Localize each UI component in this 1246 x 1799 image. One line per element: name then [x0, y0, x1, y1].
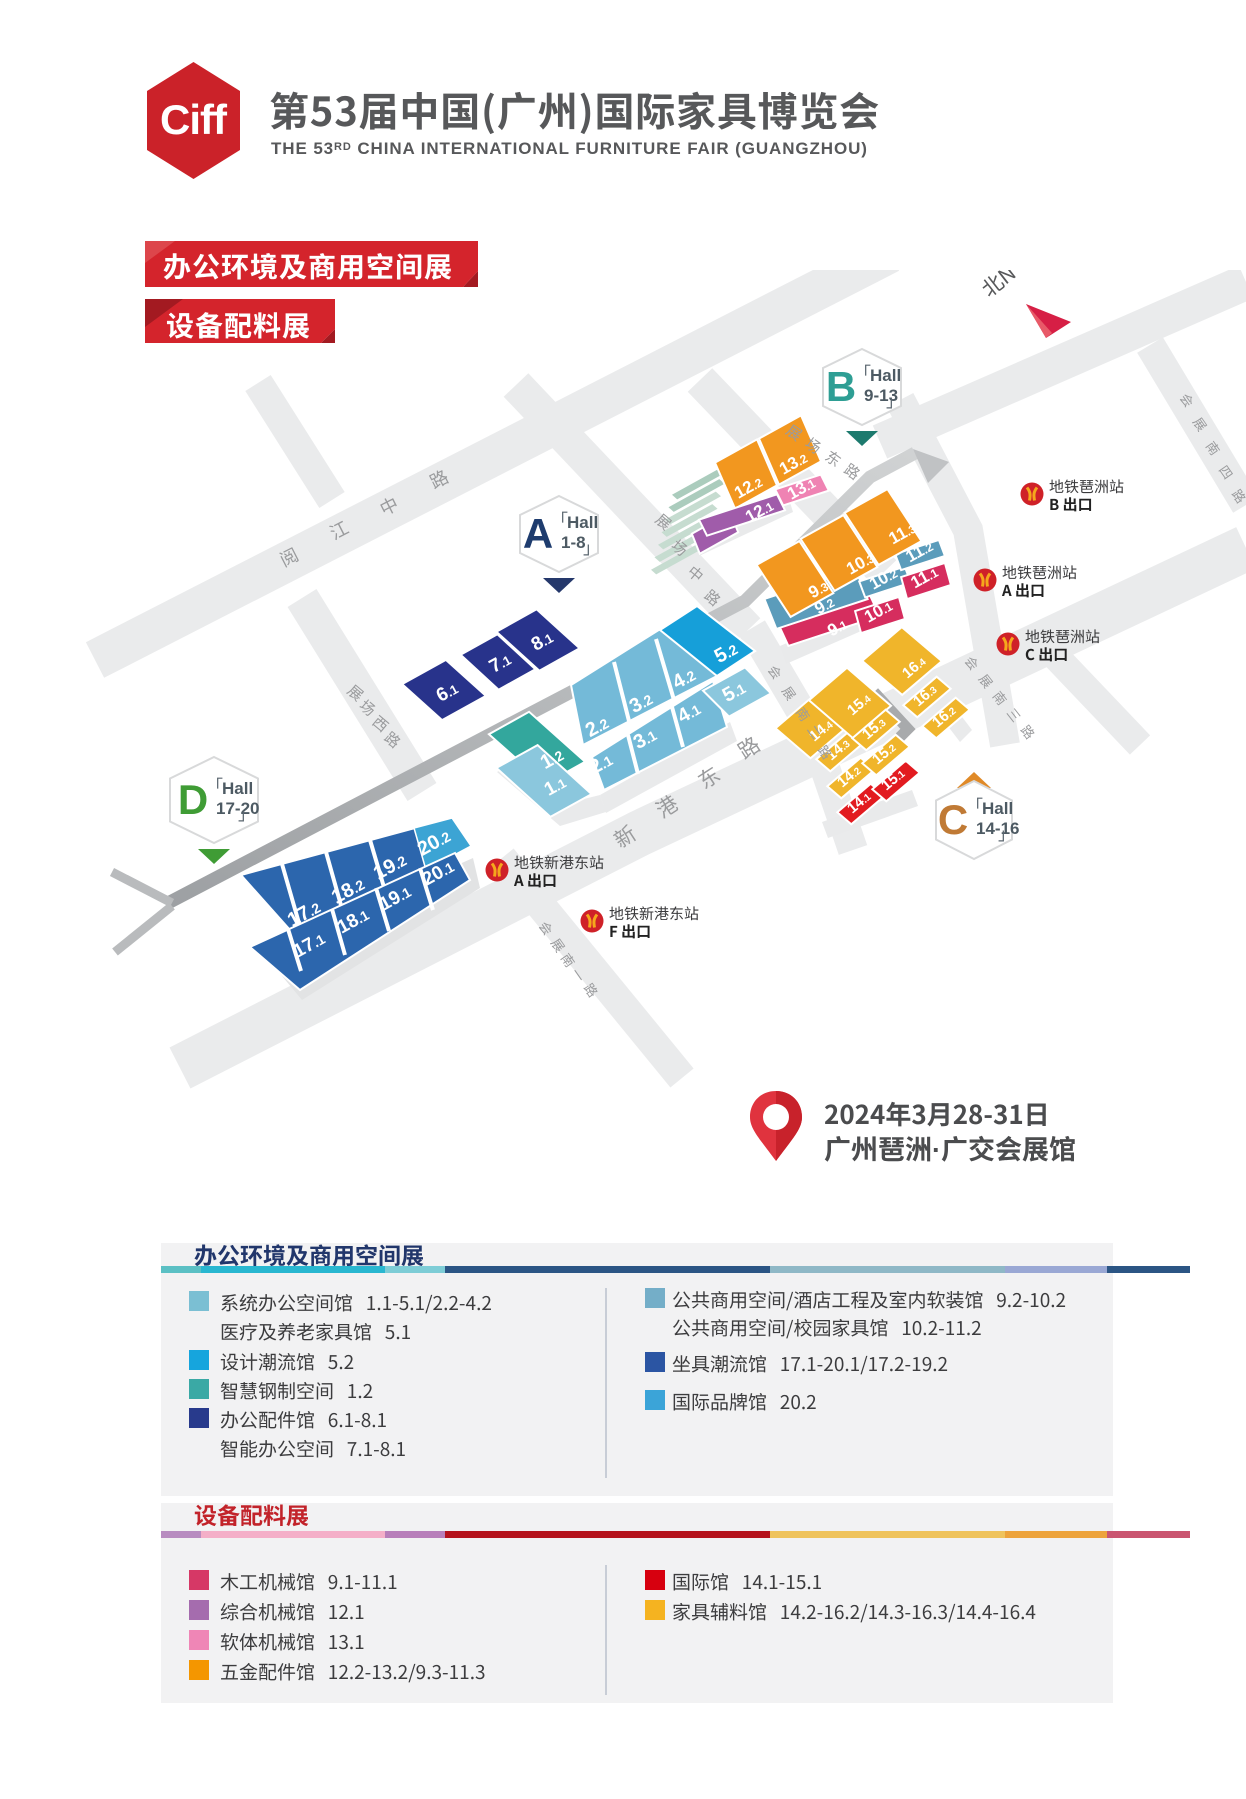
svg-text:Hall: Hall: [567, 513, 598, 532]
svg-text:路: 路: [1017, 721, 1040, 743]
svg-text:「: 「: [206, 772, 223, 797]
svg-text:」: 」: [238, 800, 255, 825]
svg-text:」: 」: [998, 820, 1015, 845]
svg-text:B: B: [826, 363, 856, 410]
svg-text:东: 东: [821, 446, 845, 472]
svg-text:Ciff: Ciff: [160, 96, 228, 143]
svg-text:Hall: Hall: [982, 799, 1013, 818]
svg-text:北N: 北N: [975, 270, 1022, 304]
svg-text:C: C: [938, 796, 968, 843]
svg-text:A 出口: A 出口: [1001, 580, 1045, 601]
svg-text:Hall: Hall: [870, 366, 901, 385]
svg-text:」: 」: [583, 534, 600, 559]
svg-text:F 出口: F 出口: [609, 921, 651, 942]
svg-text:B 出口: B 出口: [1049, 494, 1093, 515]
svg-text:D: D: [178, 776, 208, 823]
svg-text:1-8: 1-8: [561, 533, 586, 552]
svg-text:「: 「: [966, 792, 983, 817]
svg-text:Hall: Hall: [222, 779, 253, 798]
svg-text:A: A: [523, 510, 553, 557]
svg-text:「: 「: [854, 359, 871, 384]
svg-text:」: 」: [886, 387, 903, 412]
svg-text:C 出口: C 出口: [1025, 644, 1068, 665]
svg-text:A 出口: A 出口: [513, 870, 557, 891]
svg-text:「: 「: [551, 506, 568, 531]
